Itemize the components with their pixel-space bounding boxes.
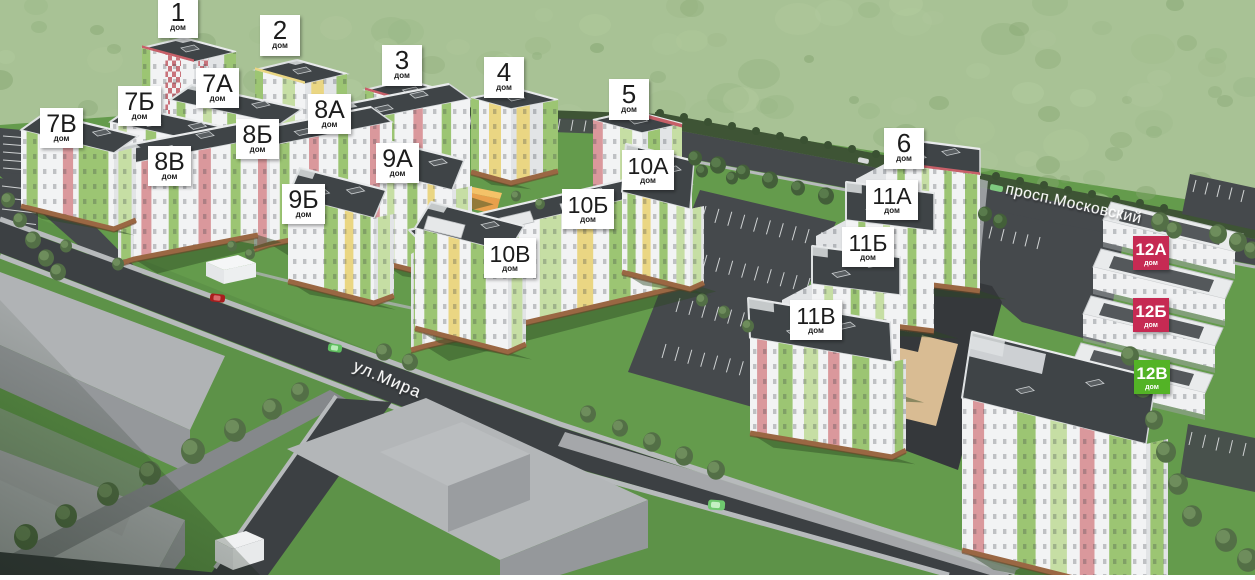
svg-text:12А: 12А bbox=[1135, 240, 1166, 259]
svg-text:дом: дом bbox=[54, 134, 70, 143]
svg-text:дом: дом bbox=[250, 145, 266, 154]
svg-text:дом: дом bbox=[322, 120, 338, 129]
svg-text:дом: дом bbox=[1144, 260, 1158, 267]
svg-text:дом: дом bbox=[640, 176, 656, 185]
svg-text:дом: дом bbox=[884, 206, 900, 215]
svg-text:дом: дом bbox=[296, 210, 312, 219]
svg-text:дом: дом bbox=[496, 83, 512, 92]
svg-text:дом: дом bbox=[621, 105, 637, 114]
svg-text:дом: дом bbox=[170, 23, 186, 32]
svg-text:дом: дом bbox=[210, 94, 226, 103]
svg-text:дом: дом bbox=[860, 253, 876, 262]
svg-text:дом: дом bbox=[580, 215, 596, 224]
svg-text:дом: дом bbox=[390, 169, 406, 178]
svg-text:дом: дом bbox=[132, 112, 148, 121]
svg-text:дом: дом bbox=[1144, 322, 1158, 329]
svg-text:дом: дом bbox=[808, 326, 824, 335]
svg-text:дом: дом bbox=[272, 41, 288, 50]
svg-text:дом: дом bbox=[394, 71, 410, 80]
svg-text:дом: дом bbox=[1145, 384, 1159, 391]
svg-text:дом: дом bbox=[162, 172, 178, 181]
svg-text:12Б: 12Б bbox=[1135, 302, 1166, 321]
svg-text:12В: 12В bbox=[1136, 364, 1167, 383]
svg-text:дом: дом bbox=[896, 154, 912, 163]
svg-text:дом: дом bbox=[502, 264, 518, 273]
